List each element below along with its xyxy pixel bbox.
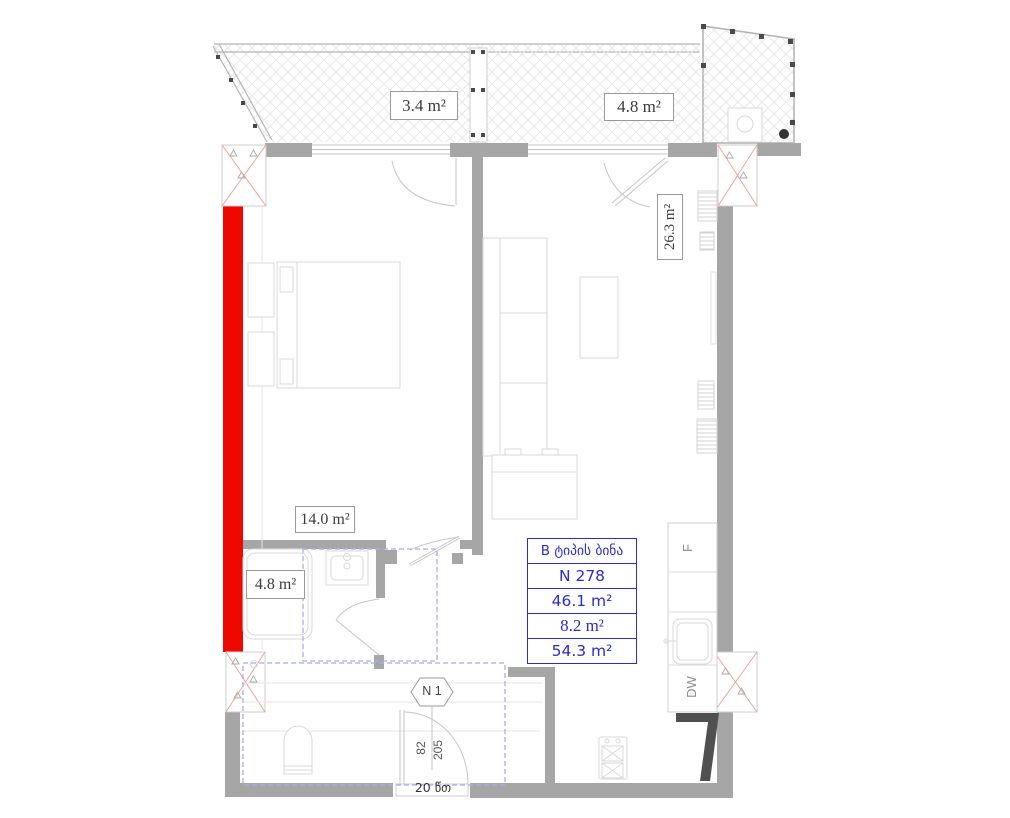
bathroom-area-label: 4.8 m² bbox=[246, 570, 305, 599]
nightstand bbox=[248, 332, 274, 386]
entry-note: 20 წთ bbox=[403, 780, 463, 795]
balcony-right-area-label: 4.8 m² bbox=[604, 93, 674, 121]
stove bbox=[599, 737, 627, 779]
apartment-total-area: 54.3 m² bbox=[528, 638, 636, 663]
highlighted-wall bbox=[223, 206, 243, 652]
apartment-number: N 278 bbox=[528, 563, 636, 588]
sofa bbox=[483, 238, 547, 456]
terrace-drain-dot bbox=[779, 129, 789, 139]
dishwasher-label: DW bbox=[684, 670, 702, 704]
floor-plan: 3.4 m² 4.8 m² 26.3 m² 14.0 m² 4.8 m² B ტ… bbox=[0, 0, 1010, 818]
bed bbox=[277, 262, 400, 388]
bedroom-balcony-door bbox=[392, 158, 456, 206]
apartment-info-box[interactable]: B ტიპის ბინა N 278 46.1 m² 8.2 m² 54.3 m… bbox=[527, 538, 637, 664]
apartment-type-label: B ტიპის ბინა bbox=[528, 539, 636, 563]
nightstand bbox=[248, 263, 274, 317]
balcony-divider-wall bbox=[470, 48, 487, 142]
toilet bbox=[284, 726, 312, 774]
bedroom-furniture bbox=[248, 262, 400, 388]
entry-door-tag: N 1 bbox=[412, 684, 452, 698]
living-furniture bbox=[483, 238, 618, 519]
apartment-net-area: 46.1 m² bbox=[528, 588, 636, 613]
bedroom-area-label: 14.0 m² bbox=[295, 506, 355, 533]
door-height-dim: 205 bbox=[431, 735, 447, 765]
terrace bbox=[701, 24, 795, 143]
bath-sink bbox=[326, 551, 368, 585]
pillow bbox=[280, 359, 293, 384]
radiators bbox=[697, 191, 717, 453]
table bbox=[492, 455, 577, 519]
apartment-balcony-area: 8.2 m² bbox=[528, 613, 636, 638]
pillow bbox=[280, 267, 293, 292]
living-room-area-label: 26.3 m² bbox=[657, 194, 683, 260]
floor-plan-drawing bbox=[0, 0, 1010, 818]
shaft bbox=[676, 713, 719, 781]
door-width-dim: 82 bbox=[414, 735, 430, 761]
balcony-left-area-label: 3.4 m² bbox=[390, 91, 458, 120]
fridge-label: F bbox=[680, 536, 698, 560]
bathroom-door bbox=[336, 599, 379, 655]
coffee-table bbox=[580, 277, 618, 358]
